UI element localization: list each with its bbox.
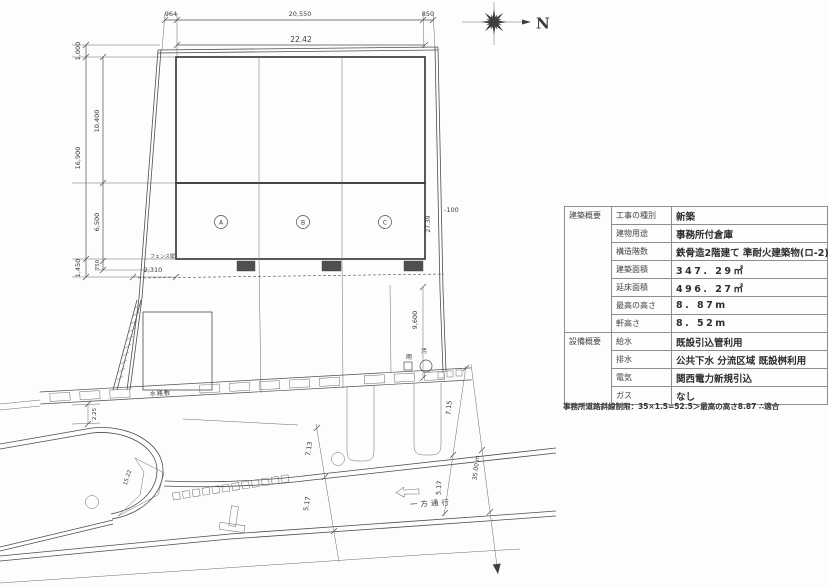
row-value: 既設引込管利用 [672,333,828,351]
building-footprint: A B C [138,57,444,393]
unit-c-label: C [383,220,387,227]
row-label: 給水 [612,333,672,351]
dim-22-42: 22.42 [290,35,312,44]
dim-6500: 6,500 [93,213,101,232]
dim-7-13: 7.13 [304,441,314,457]
roads: 一方通行 [0,383,556,583]
dim-850: 850 [422,10,434,18]
row-value: 鉄骨造2階建て 準耐火建築物(ロ-2) [672,243,828,261]
row-label: 工事の種別 [612,207,672,225]
north-compass: N [462,2,550,45]
fence-label: フェンス塀 [150,253,175,260]
row-value: 8. 87m [672,297,828,315]
entrance-step-c [404,261,423,271]
row-value: 347. 29㎡ [672,261,828,279]
north-arrowhead [522,20,531,25]
unit-a-label: A [219,220,224,227]
row-value: 公共下水 分流区域 既設桝利用 [672,351,828,369]
waterway-label: 水路敷 [150,389,171,398]
slope-restriction-note: 事務所道路斜線制限：35×1.5=52.5＞最高の高さ8.87 ∴適合 [563,401,779,412]
row-value: 496. 27㎡ [672,279,828,297]
dim-1450: 1,450 [74,259,82,278]
row-label: 電気 [612,369,672,387]
row-value: 事務所付倉庫 [672,225,828,243]
rain-drain-label: 雨 [406,354,412,361]
dim-20550: 20,550 [289,10,312,18]
dim-750: 750 [95,259,101,270]
dim-2-25: 2.25 [92,407,98,420]
dim-7-15: 7.15 [444,400,453,415]
dim-5-17-left: 5.17 [302,496,312,512]
group-equipment-overview: 設備概要 [565,333,612,405]
row-label: 建築面積 [612,261,672,279]
dim-27-39: 27.39 [425,215,432,232]
sewer-drain-label: 汚 [421,347,427,355]
row-label: 構造階数 [612,243,672,261]
dim-15-22: 15.22 [123,469,134,486]
one-way-marking [396,486,419,497]
dim-2310: 2,310 [144,266,163,274]
dim-5-17-right: 5.17 [434,480,443,495]
left-dimensions: 1,000 16,900 1,450 10,400 6,500 750 [72,42,176,280]
entrance-step-b [322,261,341,271]
small-structure [143,312,212,390]
dim-964: 964 [165,10,177,18]
site-boundary [127,47,446,390]
road-dimensions: 7.13 5.17 7.15 5.17 35.00 m 15.22 2.25 [72,364,501,574]
dim-35m: 35.00 m [472,455,482,481]
utility-pole-symbol [219,504,247,532]
row-label: 排水 [612,351,672,369]
top-dimensions: 964 20,550 850 22.42 [162,10,436,57]
row-label: 延床面積 [612,279,672,297]
level-minus-100: -100 [444,206,459,214]
dim-10400: 10,400 [93,110,101,133]
dim-16900: 16,900 [74,147,82,170]
row-value: 関西電力新規引込 [672,369,828,387]
row-value: 8. 52m [672,315,828,333]
waterway-strip: 水路敷 [0,368,472,425]
table-row: 設備概要 給水 既設引込管利用 [565,333,828,351]
north-label: N [536,15,550,33]
unit-b-label: B [301,220,305,227]
dim-9600: 9,600 [411,311,419,330]
entrance-step-a [237,261,255,271]
row-label: 最高の高さ [612,297,672,315]
row-value: 新築 [672,207,828,225]
west-fence: フェンス塀 2,310 [113,253,212,390]
east-annotations: -100 27.39 9,600 雨 汚 [404,206,459,381]
site-plan-sheet: 964 20,550 850 22.42 1,000 16,900 1,450 … [0,0,829,587]
row-label: 軒高さ [612,315,672,333]
dim-1000: 1,000 [74,42,82,61]
group-building-overview: 建築概要 [565,207,612,333]
row-label: 建物用途 [612,225,672,243]
spec-table: 建築概要 工事の種別 新築 建物用途 事務所付倉庫 構造階数 鉄骨造2階建て 準… [564,206,828,405]
table-row: 建築概要 工事の種別 新築 [565,207,828,225]
